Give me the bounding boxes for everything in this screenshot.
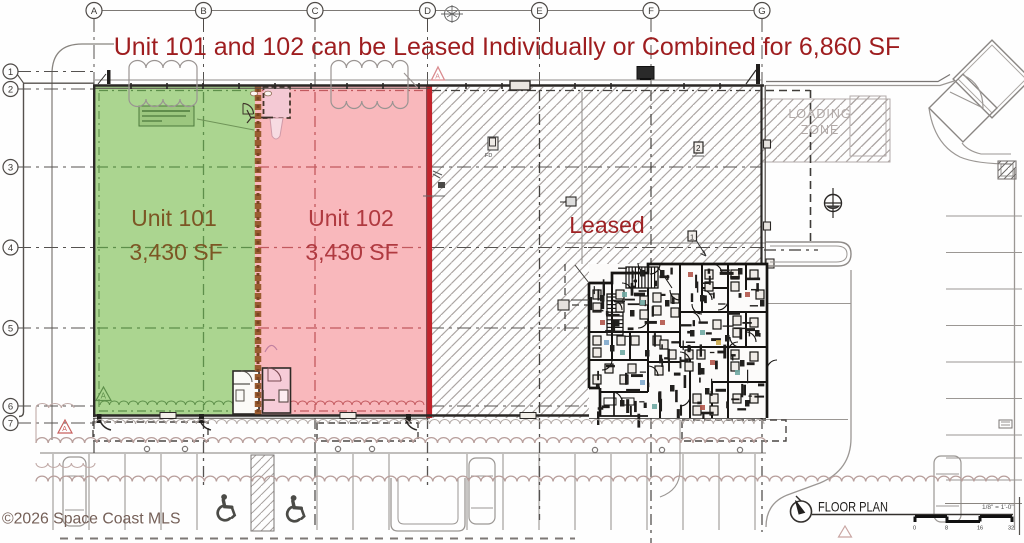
svg-text:D: D — [424, 6, 431, 17]
svg-text:1/8" = 1'-0": 1/8" = 1'-0" — [982, 504, 1014, 511]
svg-text:E: E — [536, 6, 542, 17]
svg-text:1: 1 — [690, 233, 694, 242]
svg-text:16: 16 — [977, 526, 983, 532]
svg-text:5: 5 — [8, 323, 13, 334]
svg-text:3,430 SF: 3,430 SF — [305, 239, 398, 265]
svg-text:2: 2 — [696, 144, 701, 153]
svg-text:LOADING: LOADING — [788, 107, 851, 121]
svg-text:2: 2 — [8, 84, 13, 95]
svg-text:A: A — [101, 392, 107, 401]
svg-text:FD: FD — [485, 153, 492, 159]
svg-text:Unit 101: Unit 101 — [131, 205, 217, 231]
svg-text:B: B — [200, 6, 206, 17]
svg-text:C: C — [312, 6, 319, 17]
svg-text:0: 0 — [913, 526, 916, 532]
svg-text:A: A — [435, 74, 440, 81]
svg-text:Unit 102: Unit 102 — [308, 205, 394, 231]
svg-text:G: G — [758, 6, 765, 17]
svg-text:32: 32 — [1008, 526, 1014, 532]
svg-text:4: 4 — [8, 243, 13, 254]
svg-text:A: A — [91, 6, 98, 17]
svg-text:8: 8 — [945, 526, 948, 532]
svg-text:ZONE: ZONE — [801, 123, 840, 137]
svg-text:1: 1 — [8, 67, 13, 78]
svg-text:FLOOR PLAN: FLOOR PLAN — [818, 499, 888, 515]
svg-text:3,430 SF: 3,430 SF — [129, 239, 222, 265]
svg-text:3: 3 — [8, 162, 13, 173]
svg-text:6: 6 — [8, 401, 13, 412]
svg-text:A: A — [62, 426, 67, 433]
svg-text:F: F — [648, 6, 654, 17]
svg-text:©2026 Space Coast MLS: ©2026 Space Coast MLS — [2, 511, 181, 528]
svg-text:Leased: Leased — [569, 212, 644, 238]
svg-text:Unit 101 and 102 can be Leased: Unit 101 and 102 can be Leased Individua… — [114, 33, 901, 61]
svg-text:7: 7 — [8, 418, 13, 429]
